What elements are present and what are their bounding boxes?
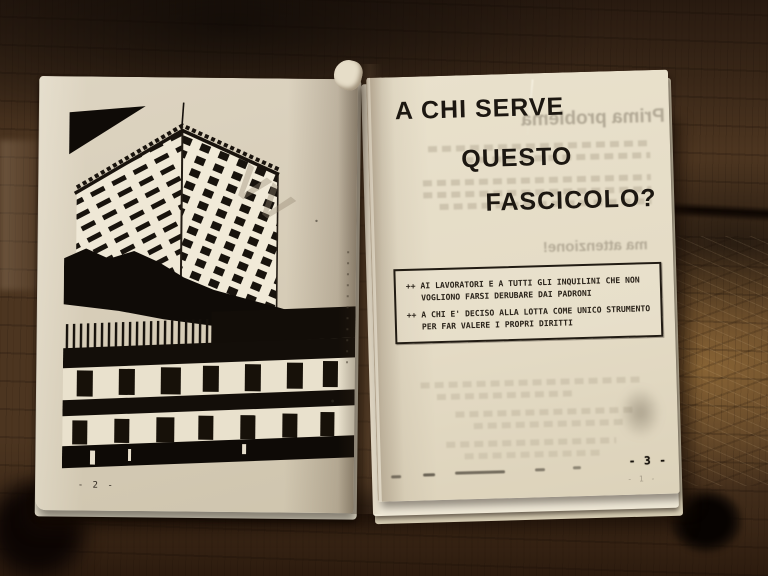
headline-line-3: FASCICOLO? xyxy=(485,184,657,218)
show-through-line xyxy=(437,390,577,400)
show-through-line xyxy=(465,449,605,459)
photo-corner-triangle xyxy=(69,105,146,155)
headline-line-1: A CHI SERVE xyxy=(395,92,565,126)
building-photo: VV xyxy=(62,98,358,473)
right-page: Prima problema ma attenzione! A CHI SERV… xyxy=(366,70,680,502)
smear-mark xyxy=(455,470,505,474)
notice-item-1: ++ AI LAVORATORI E A TUTTI GLI INQUILINI… xyxy=(406,273,651,304)
notice-box: ++ AI LAVORATORI E A TUTTI GLI INQUILINI… xyxy=(393,262,663,344)
underlying-page-number: - 1 - xyxy=(627,474,656,484)
left-page: VV xyxy=(35,76,358,513)
right-page-number: - 3 - xyxy=(629,454,667,468)
notice-item-1-text: AI LAVORATORI E A TUTTI GLI INQUILINI CH… xyxy=(420,274,639,302)
smear-mark xyxy=(423,473,435,476)
notice-item-2-bullet: ++ xyxy=(407,310,417,320)
smear-mark xyxy=(573,466,581,469)
notice-item-2: ++ A CHI E' DECISO ALLA LOTTA COME UNICO… xyxy=(406,302,651,333)
left-page-number: - 2 - xyxy=(78,480,115,490)
show-through-note: ma attenzione! xyxy=(521,236,671,257)
smear-mark xyxy=(535,468,545,471)
photo-old-building xyxy=(62,303,356,471)
show-through-line xyxy=(446,437,616,448)
notice-item-1-bullet: ++ xyxy=(406,281,416,291)
photo-of-open-booklet-on-wooden-table: VV xyxy=(0,0,768,576)
notice-item-2-text: A CHI E' DECISO ALLA LOTTA COME UNICO ST… xyxy=(421,303,650,332)
headline-line-2: QUESTO xyxy=(461,142,573,174)
smear-mark xyxy=(391,475,401,478)
show-through-line xyxy=(421,376,641,388)
show-through-line xyxy=(455,407,635,418)
show-through-line xyxy=(474,419,624,429)
ink-smudge xyxy=(619,386,662,439)
